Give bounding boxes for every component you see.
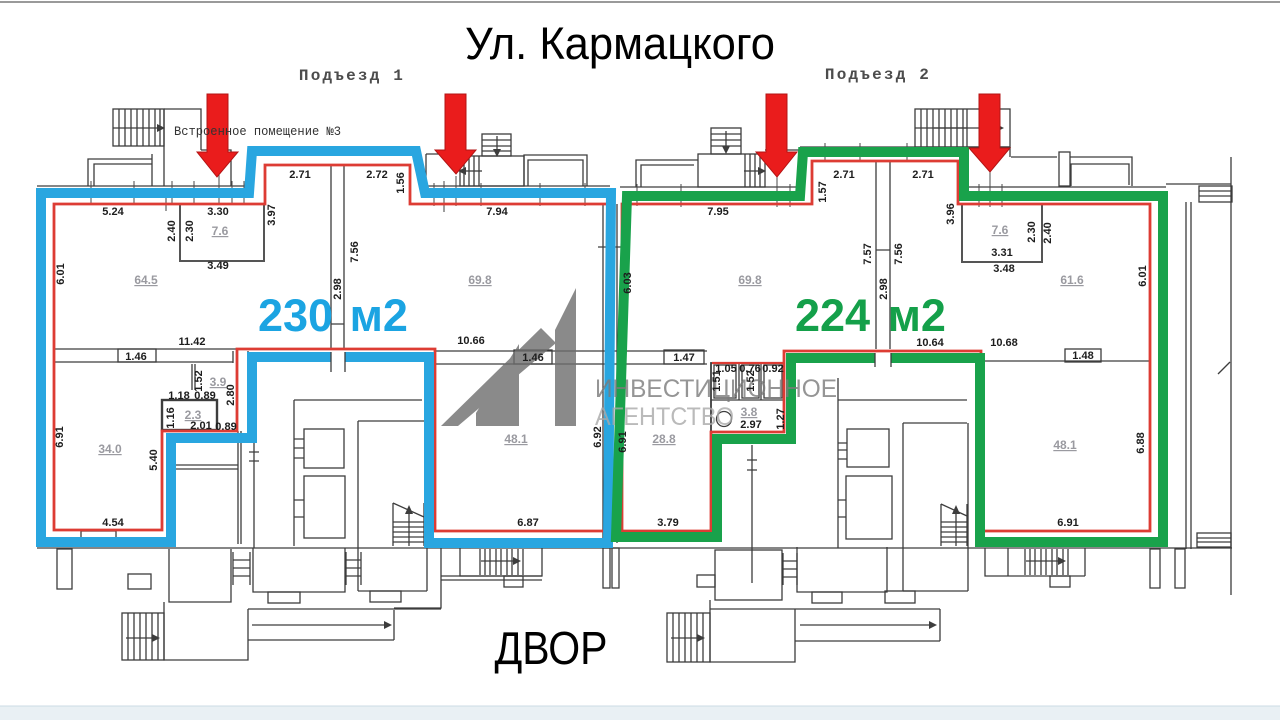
svg-text:3.30: 3.30 bbox=[207, 206, 228, 218]
svg-text:2.98: 2.98 bbox=[878, 278, 890, 299]
svg-text:48.1: 48.1 bbox=[504, 432, 528, 446]
svg-text:2.01: 2.01 bbox=[190, 420, 211, 432]
svg-text:1.27: 1.27 bbox=[775, 408, 787, 429]
svg-text:Ул. Кармацкого: Ул. Кармацкого bbox=[465, 18, 775, 69]
svg-text:1.52: 1.52 bbox=[193, 370, 205, 391]
svg-text:7.94: 7.94 bbox=[486, 206, 508, 218]
svg-text:6.91: 6.91 bbox=[617, 431, 629, 452]
svg-text:3.48: 3.48 bbox=[993, 263, 1014, 275]
svg-text:0.92: 0.92 bbox=[762, 363, 783, 375]
svg-text:АГЕНТСТВО: АГЕНТСТВО bbox=[595, 403, 734, 431]
svg-text:1.18: 1.18 bbox=[168, 390, 189, 402]
svg-text:5.24: 5.24 bbox=[102, 206, 124, 218]
svg-text:10.66: 10.66 bbox=[457, 335, 485, 347]
svg-text:1.16: 1.16 bbox=[165, 407, 177, 428]
svg-text:5.40: 5.40 bbox=[148, 449, 160, 470]
svg-text:7.6: 7.6 bbox=[212, 224, 229, 238]
svg-text:6.01: 6.01 bbox=[55, 263, 67, 284]
svg-text:1.46: 1.46 bbox=[522, 352, 543, 364]
svg-text:7.6: 7.6 bbox=[992, 223, 1009, 237]
svg-text:ДВОР: ДВОР bbox=[495, 622, 608, 674]
svg-text:1.46: 1.46 bbox=[125, 351, 146, 363]
svg-text:7.56: 7.56 bbox=[893, 243, 905, 264]
svg-text:Встроенное помещение №3: Встроенное помещение №3 bbox=[174, 125, 341, 139]
svg-text:6.87: 6.87 bbox=[517, 517, 538, 529]
svg-text:2.71: 2.71 bbox=[833, 169, 854, 181]
svg-text:224 м2: 224 м2 bbox=[795, 290, 946, 341]
svg-text:2.71: 2.71 bbox=[289, 169, 310, 181]
svg-text:1.51: 1.51 bbox=[711, 370, 723, 391]
svg-text:Подъезд 1: Подъезд 1 bbox=[299, 67, 405, 85]
svg-text:28.8: 28.8 bbox=[652, 432, 676, 446]
svg-text:2.98: 2.98 bbox=[332, 278, 344, 299]
svg-text:0.89: 0.89 bbox=[194, 390, 215, 402]
svg-text:48.1: 48.1 bbox=[1053, 438, 1077, 452]
svg-text:2.30: 2.30 bbox=[184, 220, 196, 241]
svg-text:1.47: 1.47 bbox=[673, 352, 694, 364]
svg-text:1.52: 1.52 bbox=[745, 370, 757, 391]
svg-text:3.79: 3.79 bbox=[657, 517, 678, 529]
svg-text:2.40: 2.40 bbox=[1042, 222, 1054, 243]
svg-text:11.42: 11.42 bbox=[179, 336, 206, 348]
svg-text:1.56: 1.56 bbox=[395, 172, 407, 193]
svg-text:2.97: 2.97 bbox=[740, 419, 761, 431]
svg-text:1.48: 1.48 bbox=[1072, 350, 1093, 362]
svg-text:1.57: 1.57 bbox=[817, 181, 829, 202]
svg-text:64.5: 64.5 bbox=[134, 273, 158, 287]
svg-text:2.72: 2.72 bbox=[366, 169, 387, 181]
svg-text:7.56: 7.56 bbox=[349, 241, 361, 262]
svg-text:7.95: 7.95 bbox=[707, 206, 728, 218]
svg-text:7.57: 7.57 bbox=[862, 243, 874, 264]
svg-text:69.8: 69.8 bbox=[468, 273, 492, 287]
svg-text:61.6: 61.6 bbox=[1060, 273, 1084, 287]
svg-text:3.97: 3.97 bbox=[266, 204, 278, 225]
svg-text:6.91: 6.91 bbox=[54, 426, 66, 447]
svg-text:2.40: 2.40 bbox=[166, 220, 178, 241]
svg-text:2.80: 2.80 bbox=[225, 384, 237, 405]
svg-text:69.8: 69.8 bbox=[738, 273, 762, 287]
svg-text:3.96: 3.96 bbox=[945, 203, 957, 224]
svg-text:3.31: 3.31 bbox=[991, 247, 1012, 259]
svg-text:10.68: 10.68 bbox=[990, 337, 1018, 349]
svg-text:6.03: 6.03 bbox=[622, 272, 634, 293]
svg-text:3.8: 3.8 bbox=[741, 405, 758, 419]
svg-text:0.89: 0.89 bbox=[215, 421, 236, 433]
svg-text:6.88: 6.88 bbox=[1135, 432, 1147, 453]
svg-text:3.49: 3.49 bbox=[207, 260, 228, 272]
svg-text:6.92: 6.92 bbox=[592, 426, 604, 447]
svg-text:34.0: 34.0 bbox=[98, 442, 122, 456]
svg-text:6.01: 6.01 bbox=[1137, 265, 1149, 286]
svg-text:10.64: 10.64 bbox=[916, 337, 944, 349]
svg-text:2.71: 2.71 bbox=[912, 169, 933, 181]
svg-text:2.30: 2.30 bbox=[1026, 221, 1038, 242]
svg-text:4.54: 4.54 bbox=[102, 517, 124, 529]
svg-text:6.91: 6.91 bbox=[1057, 517, 1078, 529]
svg-text:Подъезд 2: Подъезд 2 bbox=[825, 66, 931, 84]
